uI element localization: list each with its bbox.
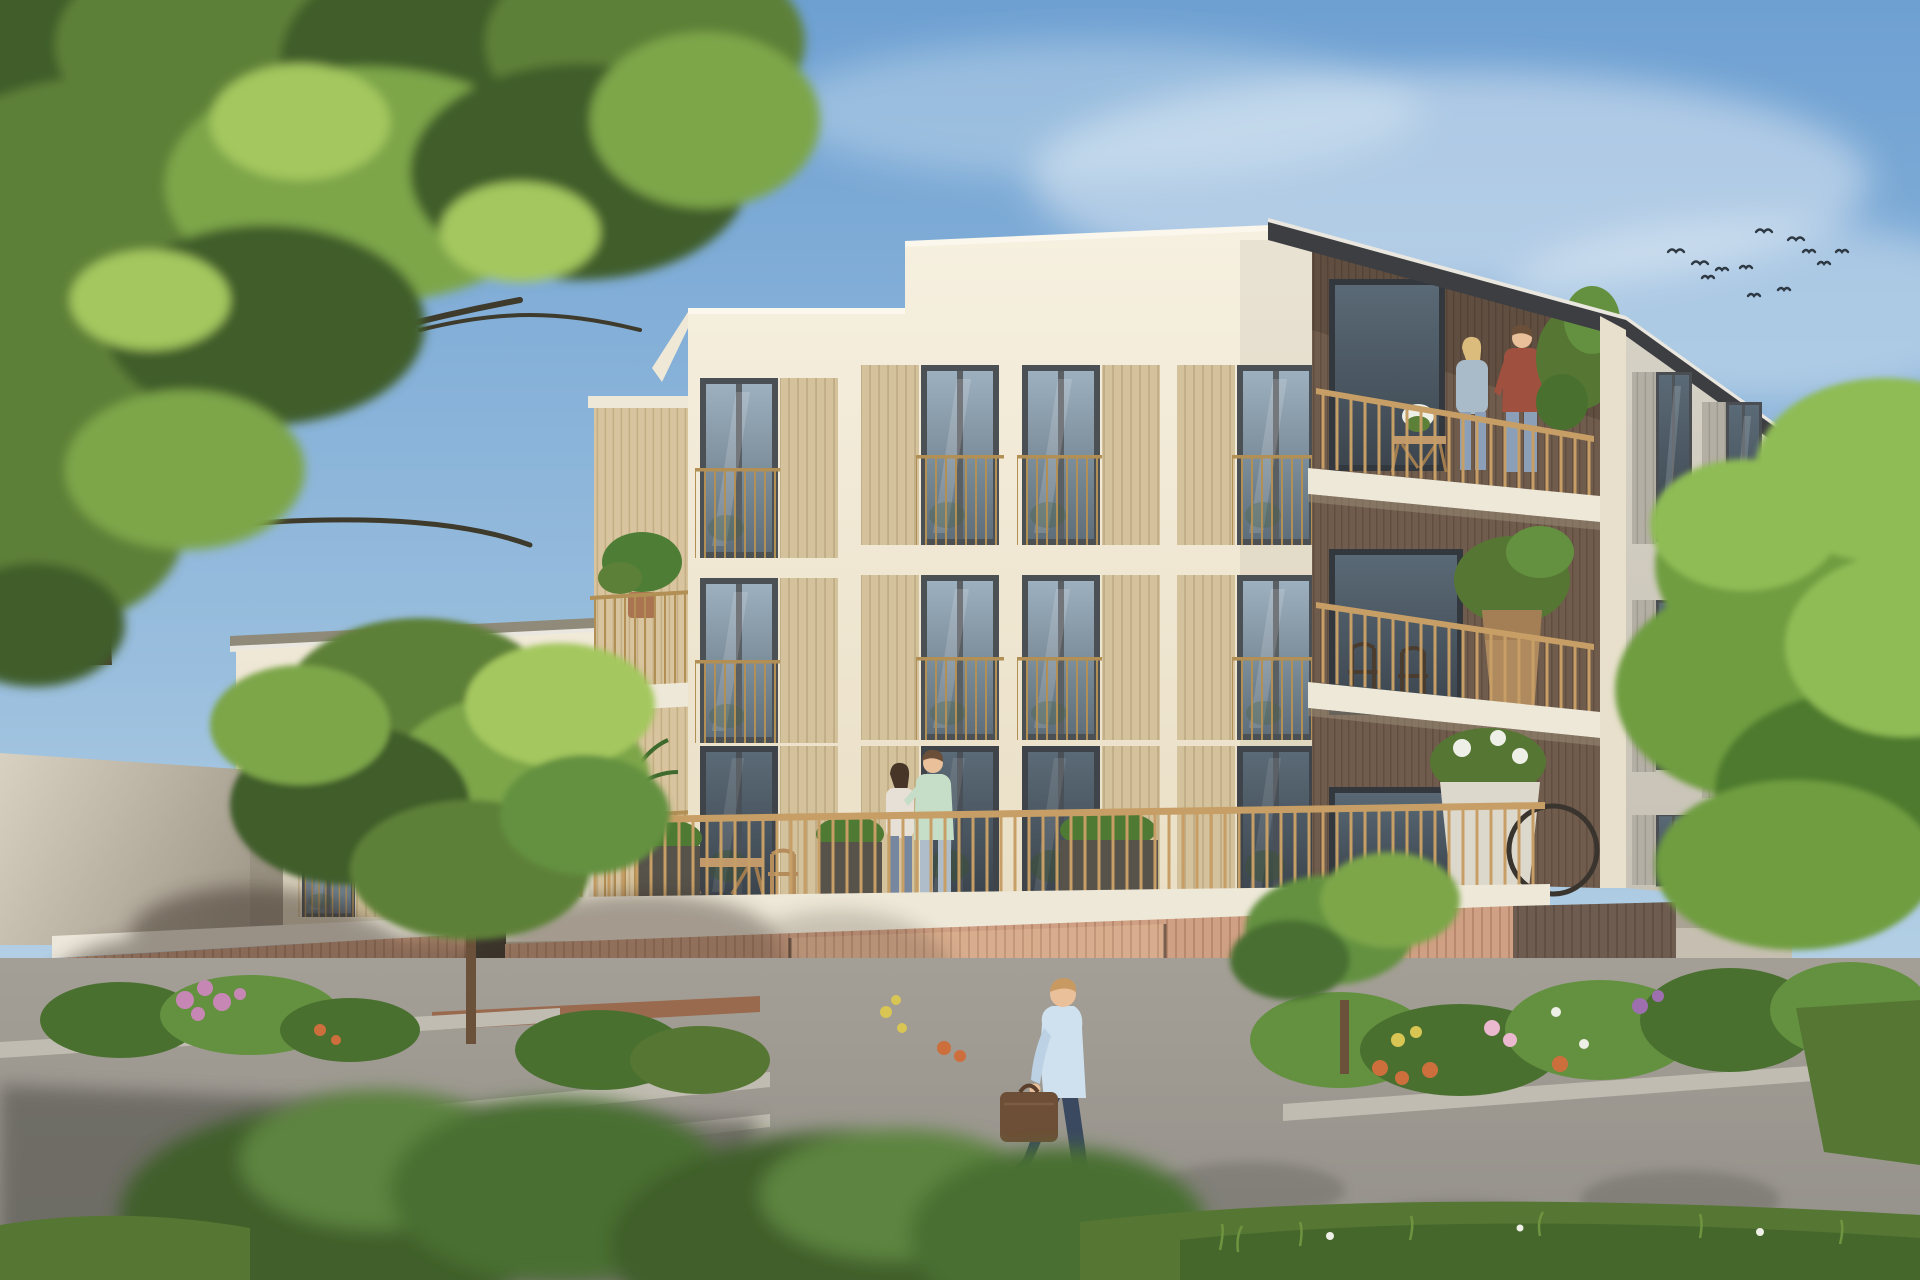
parapet-cap-left <box>688 308 905 314</box>
main-building <box>688 225 1320 898</box>
shutter <box>861 575 919 740</box>
window <box>695 378 783 558</box>
shutter <box>1177 575 1235 740</box>
scene-canvas <box>0 0 1920 1280</box>
corner-edge <box>1600 316 1626 888</box>
shutter <box>780 378 838 558</box>
window <box>1017 365 1105 545</box>
shutter <box>1102 365 1160 545</box>
shutter <box>1177 365 1235 545</box>
shutter <box>1102 575 1160 740</box>
shutter <box>780 578 838 743</box>
shutter <box>1632 815 1656 885</box>
briefcase <box>1000 1086 1058 1143</box>
window <box>916 575 1004 740</box>
blue-shirt <box>1041 1006 1086 1098</box>
architectural-rendering <box>0 0 1920 1280</box>
window <box>1017 575 1105 740</box>
shutter <box>861 365 919 545</box>
window <box>1232 575 1320 740</box>
tree-trunk <box>466 928 476 1044</box>
window <box>916 365 1004 545</box>
coping <box>588 396 694 408</box>
window <box>1232 365 1320 545</box>
window <box>695 578 783 743</box>
denim-jacket <box>1456 360 1488 414</box>
